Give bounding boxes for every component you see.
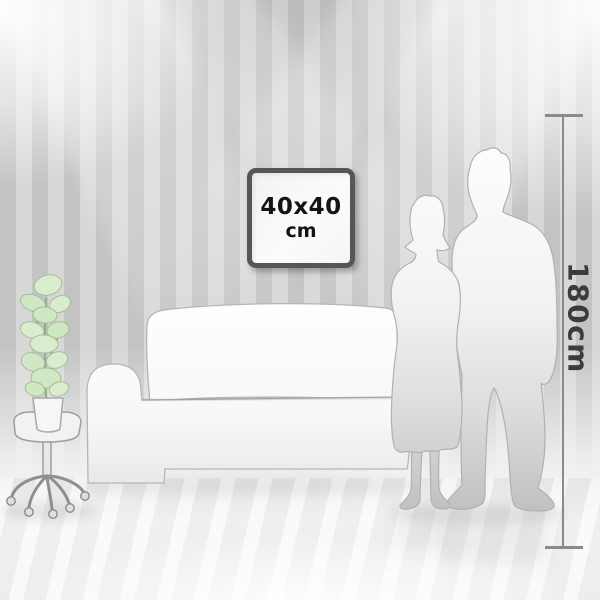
height-ruler-bottom-cap <box>545 546 583 549</box>
woman-silhouette <box>391 195 462 452</box>
scene-objects <box>0 0 600 600</box>
sofa-illustration <box>87 304 411 483</box>
plant-illustration <box>18 272 73 432</box>
ruler-height-label: 180cm <box>562 262 595 374</box>
frame-unit-label: cm <box>285 222 316 241</box>
frame-size-label: 40x40 <box>260 195 341 220</box>
picture-frame: 40x40 cm <box>247 168 355 268</box>
height-ruler-top-cap <box>545 114 583 117</box>
woman-silhouette <box>430 448 450 509</box>
couple-silhouette <box>391 148 557 511</box>
room-illustration: 40x40 cm 180cm <box>0 0 600 600</box>
man-silhouette <box>447 148 557 511</box>
